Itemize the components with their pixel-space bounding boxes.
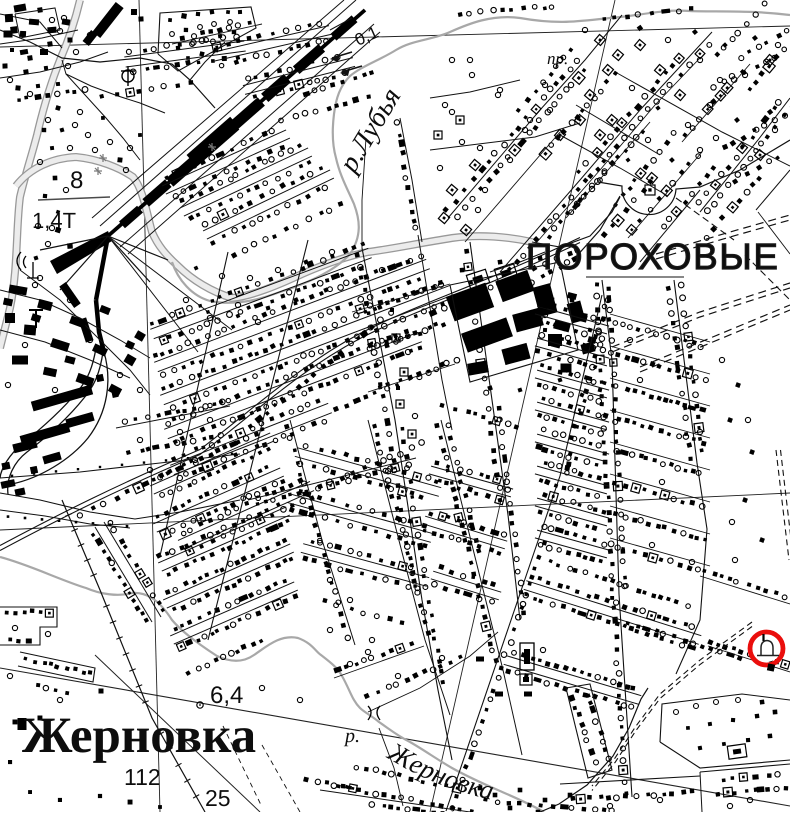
svg-text:Жерновка: Жерновка <box>22 708 256 764</box>
svg-text:112: 112 <box>124 764 161 790</box>
svg-text:6,4: 6,4 <box>210 682 243 709</box>
svg-text:8: 8 <box>70 167 83 194</box>
svg-text:ПОРОХОВЫЕ: ПОРОХОВЫЕ <box>526 236 780 277</box>
svg-text:р.: р. <box>343 725 360 747</box>
svg-text:25: 25 <box>205 785 231 811</box>
